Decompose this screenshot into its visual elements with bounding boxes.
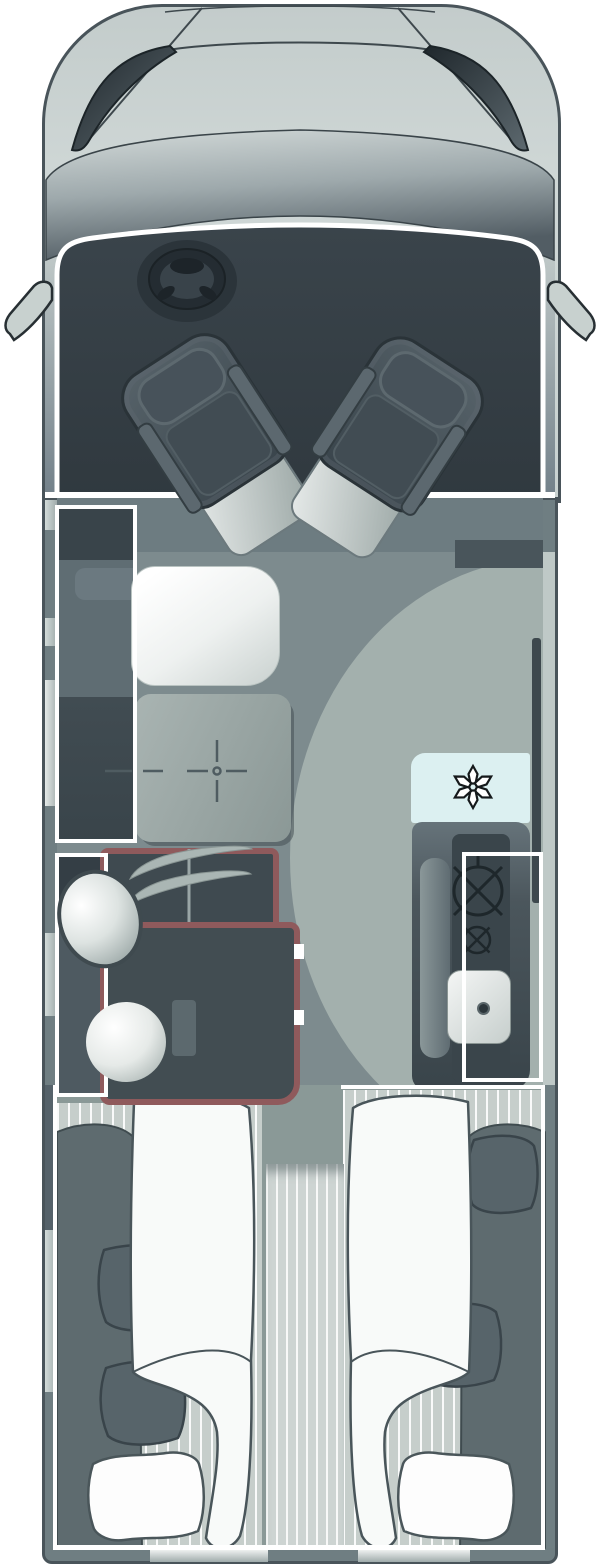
snowflake-icon <box>446 760 500 814</box>
hood-seam <box>168 43 432 51</box>
cab-interior <box>57 225 543 500</box>
a-pillar-line-right <box>398 8 520 150</box>
gas-hob <box>430 848 530 960</box>
side-sofa <box>131 566 280 686</box>
bedding <box>40 1080 560 1555</box>
wing-mirror-right-icon <box>548 282 595 340</box>
left-white-pillow <box>88 1453 204 1541</box>
right-dark-cushion-1 <box>468 1136 538 1213</box>
drain-icon <box>477 1002 490 1015</box>
right-white-pillow <box>398 1453 514 1541</box>
burner-icon-small <box>464 927 490 953</box>
cab-graphics <box>0 0 600 500</box>
sink <box>447 970 511 1044</box>
steering-wheel <box>137 240 237 322</box>
motorhome-floorplan <box>0 0 600 1564</box>
wing-mirror-left-icon <box>6 282 53 340</box>
a-pillar-line-left <box>80 8 202 150</box>
crosshair-icon <box>95 732 270 810</box>
roof-front-seam <box>165 6 435 12</box>
burner-icon-large <box>454 855 502 915</box>
toilet <box>86 1002 166 1082</box>
